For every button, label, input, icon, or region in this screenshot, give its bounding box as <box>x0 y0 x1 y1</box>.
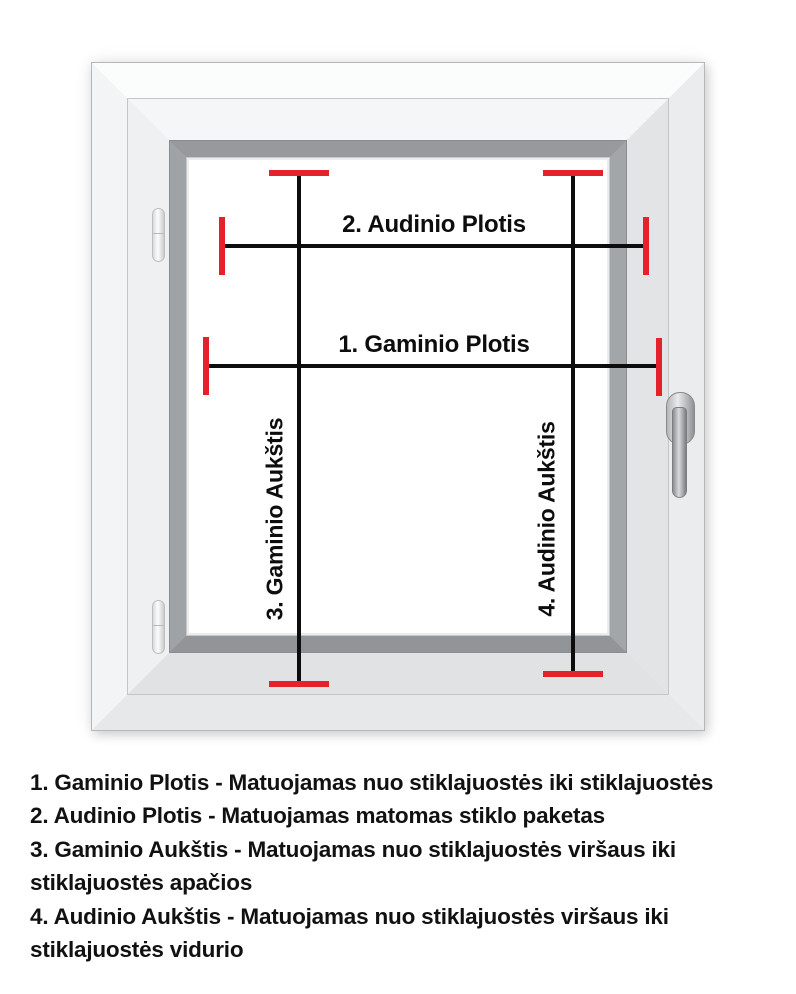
window-frame: 2. Audinio Plotis 1. Gaminio Plotis 3. G… <box>91 62 705 731</box>
tick-gaminio-aukstis-bottom <box>269 681 329 687</box>
tick-gaminio-aukstis-top <box>269 170 329 176</box>
legend-line-gaminio-aukstis-wrap: stiklajuostės apačios <box>30 866 780 899</box>
tick-audinio-aukstis-bottom <box>543 671 603 677</box>
tick-audinio-plotis-left <box>219 217 225 275</box>
label-gaminio-aukstis: 3. Gaminio Aukštis <box>262 418 289 621</box>
tick-gaminio-plotis-right <box>656 338 662 396</box>
legend: 1. Gaminio Plotis - Matuojamas nuo stikl… <box>30 766 780 966</box>
tick-gaminio-plotis-left <box>203 337 209 395</box>
measure-line-gaminio-aukstis <box>297 176 301 684</box>
measurement-overlay: 2. Audinio Plotis 1. Gaminio Plotis 3. G… <box>127 98 669 695</box>
legend-line-audinio-aukstis-wrap: stiklajuostės vidurio <box>30 933 780 966</box>
legend-line-audinio-aukstis: 4. Audinio Aukštis - Matuojamas nuo stik… <box>30 900 780 933</box>
label-gaminio-plotis: 1. Gaminio Plotis <box>338 331 529 359</box>
label-audinio-plotis: 2. Audinio Plotis <box>342 211 526 239</box>
measure-line-audinio-aukstis <box>571 176 575 674</box>
measure-line-audinio-plotis <box>222 244 646 248</box>
legend-line-audinio-plotis: 2. Audinio Plotis - Matuojamas matomas s… <box>30 799 780 832</box>
legend-line-gaminio-plotis: 1. Gaminio Plotis - Matuojamas nuo stikl… <box>30 766 780 799</box>
measure-line-gaminio-plotis <box>206 364 659 368</box>
label-audinio-aukstis: 4. Audinio Aukštis <box>534 421 561 616</box>
legend-line-gaminio-aukstis: 3. Gaminio Aukštis - Matuojamas nuo stik… <box>30 833 780 866</box>
tick-audinio-aukstis-top <box>543 170 603 176</box>
tick-audinio-plotis-right <box>643 217 649 275</box>
window-handle-lever <box>672 407 687 498</box>
